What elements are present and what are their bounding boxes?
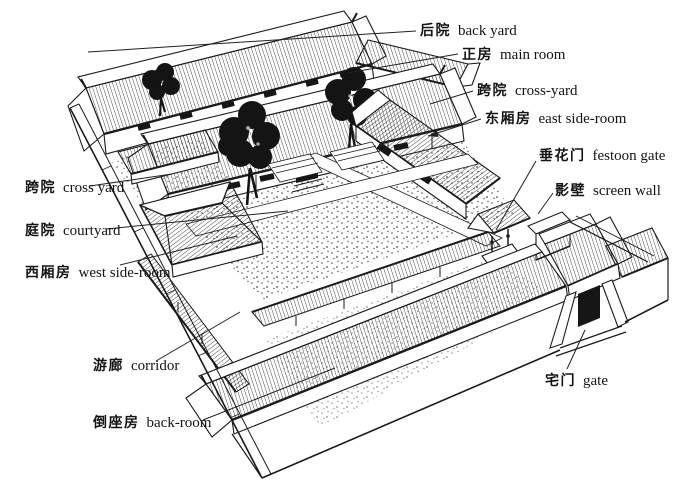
front-wall-base-right: [625, 300, 668, 322]
label-courtyard: 庭院courtyard: [25, 222, 120, 239]
label-corridor-en: corridor: [131, 358, 179, 374]
label-back-room: 倒座房back-room: [93, 414, 211, 431]
label-main-room: 正房main room: [462, 46, 565, 63]
front-wall-left-corner: [232, 434, 262, 478]
label-main-room-zh: 正房: [462, 46, 493, 62]
leader-gate: [567, 330, 585, 369]
label-cross-yard-right: 跨院cross-yard: [477, 82, 577, 99]
label-back-yard-zh: 后院: [420, 22, 451, 38]
label-east-side-room-en: east side-room: [539, 111, 627, 127]
label-back-room-en: back-room: [147, 415, 212, 431]
label-cross-yard-left: 跨院cross yard: [25, 179, 124, 196]
siheyuan-diagram: 后院back yard 正房main room 跨院cross-yard 东厢房…: [0, 0, 680, 500]
label-west-side-room-en: west side-room: [79, 265, 171, 281]
festoon-pendant: [506, 234, 510, 238]
label-courtyard-zh: 庭院: [25, 222, 56, 238]
label-screen-wall-en: screen wall: [593, 183, 661, 199]
label-back-room-zh: 倒座房: [93, 414, 140, 430]
label-corridor-zh: 游廊: [93, 357, 124, 373]
label-east-side-room-zh: 东厢房: [485, 110, 532, 126]
label-festoon-gate-en: festoon gate: [593, 148, 666, 164]
leader-screen-wall: [538, 193, 553, 214]
gate-flank-wall-right: [602, 280, 628, 327]
label-cross-yard-left-zh: 跨院: [25, 179, 56, 195]
festoon-pendant: [490, 240, 494, 244]
label-east-side-room: 东厢房east side-room: [485, 110, 626, 127]
label-festoon-gate-zh: 垂花门: [539, 147, 586, 163]
label-festoon-gate: 垂花门festoon gate: [539, 147, 665, 164]
label-screen-wall: 影壁screen wall: [555, 182, 661, 199]
label-cross-yard-right-en: cross-yard: [515, 83, 577, 99]
label-gate-en: gate: [583, 373, 608, 389]
gate-steps: [556, 326, 626, 356]
label-west-side-room-zh: 西厢房: [25, 264, 72, 280]
label-main-room-en: main room: [500, 47, 565, 63]
label-screen-wall-zh: 影壁: [555, 182, 586, 198]
label-cross-yard-right-zh: 跨院: [477, 82, 508, 98]
label-back-yard-en: back yard: [458, 23, 517, 39]
label-back-yard: 后院back yard: [420, 22, 517, 39]
label-west-side-room: 西厢房west side-room: [25, 264, 171, 281]
label-cross-yard-left-en: cross yard: [63, 180, 124, 196]
label-gate-zh: 宅门: [545, 372, 576, 388]
label-courtyard-en: courtyard: [63, 223, 120, 239]
label-corridor: 游廊corridor: [93, 357, 179, 374]
label-gate: 宅门gate: [545, 372, 608, 389]
